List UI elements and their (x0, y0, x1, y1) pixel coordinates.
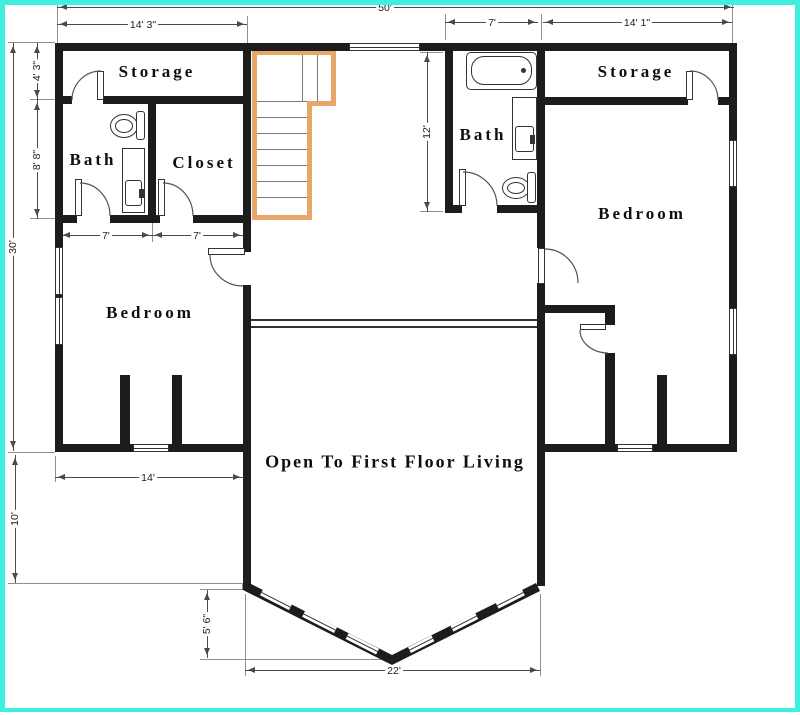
wall-right-exterior (729, 43, 737, 452)
room-label-closet-left: Closet (172, 153, 235, 173)
extension-line (200, 659, 392, 660)
dim-label-left-overall: 30' (7, 238, 19, 256)
stair-tread (257, 133, 307, 134)
stair-tread (257, 117, 307, 118)
room-label-storage-right: Storage (598, 62, 675, 82)
door-swing-arc (163, 183, 193, 216)
extension-line (245, 594, 246, 676)
wall-storageR-a (545, 97, 688, 105)
toilet-tank-icon (527, 172, 536, 203)
dim-label-bay-depth: 5' 6" (201, 612, 213, 636)
dim-line-overall-width (57, 7, 734, 8)
bay-window-mullion (497, 592, 523, 605)
wall-bathL-a (55, 215, 77, 223)
room-label-storage-left: Storage (119, 62, 196, 82)
window-top-hall (349, 43, 420, 51)
window-left-2 (55, 297, 63, 345)
wall-bedroomR-left-lower (537, 283, 545, 586)
loft-railing (251, 326, 537, 328)
wall-top-left (55, 43, 349, 51)
wall-stub-bedroomR (657, 375, 667, 445)
bay-window (452, 616, 477, 629)
door-leaf-storage-left (97, 71, 104, 100)
wall-stairwell-left-upper (243, 43, 251, 252)
dim-label-bay-width: 22' (385, 665, 403, 677)
extension-line (541, 14, 542, 40)
dim-label-left-storage-depth: 4' 3" (31, 59, 43, 83)
dim-label-bath-width: 7' (100, 230, 112, 242)
bay-window-mullion (347, 636, 378, 652)
door-swing-arc (690, 71, 718, 100)
stair-tread (257, 101, 307, 102)
wall-closetR-side (605, 353, 615, 445)
faucet-icon (139, 189, 144, 198)
bay-window (262, 592, 291, 607)
stair-run-floor (252, 50, 312, 220)
overlay-graphics (0, 0, 800, 715)
extension-line (247, 16, 248, 43)
bay-window-mullion (304, 614, 336, 630)
bay-wall (247, 584, 538, 660)
stair-tread (257, 181, 307, 182)
door-leaf-closet-right (580, 324, 606, 330)
room-label-bedroom-left: Bedroom (106, 303, 194, 323)
page-border-bottom (0, 708, 800, 712)
stair-tread (257, 197, 307, 198)
room-label-bath-left: Bath (70, 150, 117, 170)
door-leaf-bedroom-left (208, 248, 245, 255)
bay-window (347, 636, 378, 652)
dim-label-top-bath: 7' (486, 17, 498, 29)
dim-label-top-left-wing: 14' 3" (128, 19, 158, 31)
bay-window-mullion (452, 616, 477, 629)
toilet-bowl-icon (115, 119, 133, 133)
wall-bath-closet-divider (148, 104, 156, 215)
wall-bathR-left (445, 43, 453, 213)
extension-line (540, 594, 541, 676)
stair-tread (317, 55, 318, 101)
room-label-bedroom-right: Bedroom (598, 204, 686, 224)
wall-closetR-stub (605, 313, 615, 325)
window-left-1 (55, 247, 63, 295)
window-right-1 (729, 140, 737, 187)
door-leaf-bath-right (459, 169, 466, 206)
page-border-top (0, 0, 800, 5)
bay-window (304, 614, 336, 630)
wall-storageL-b (103, 96, 245, 104)
wall-central-left-lower (243, 285, 251, 586)
dim-label-top-right-wing: 14' 1" (622, 17, 652, 29)
door-swing-arc (545, 249, 578, 283)
wall-bathL-c (193, 215, 247, 223)
extension-line (8, 452, 55, 453)
wall-bathL-b (110, 215, 160, 223)
toilet-tank-icon (136, 111, 145, 140)
page-border-left (0, 0, 5, 712)
door-leaf-bedroom-right (538, 248, 545, 284)
door-swing-arc (463, 172, 497, 206)
door-swing-arc (210, 255, 243, 286)
page-border-right (795, 0, 800, 712)
dim-label-left-lower: 10' (9, 510, 21, 528)
bay-window (497, 592, 523, 605)
door-leaf-closet-left (158, 179, 165, 216)
room-label-bath-right: Bath (460, 125, 507, 145)
stair-edge-bottom (252, 215, 312, 220)
toilet-bowl-icon (507, 182, 525, 194)
bay-window (410, 638, 433, 650)
dim-label-bedroom-width: 14' (139, 472, 157, 484)
stair-tread (257, 149, 307, 150)
door-leaf-storage-right (686, 71, 693, 100)
floor-plan: 50' 14' 3" 7' 14' 1" 30' 4' 3" 8' 8" 10'… (0, 0, 800, 715)
drain-icon (521, 68, 526, 73)
dim-label-closet-width: 7' (191, 230, 203, 242)
window-right-2 (729, 308, 737, 355)
door-swing-arc (80, 183, 110, 216)
door-swing-arc (580, 330, 608, 353)
stair-tread (302, 55, 303, 101)
wall-bedroomR-left-upper (537, 43, 545, 248)
bay-window-mullion (262, 592, 291, 607)
stair-edge-left (252, 50, 257, 220)
window-bedroomR-bottom (617, 444, 653, 452)
loft-railing (251, 319, 537, 321)
stair-edge-right-upper (331, 50, 336, 106)
wall-top-right (420, 43, 737, 51)
stair-tread (257, 165, 307, 166)
door-leaf-bath-left (75, 179, 82, 216)
wall-bathR-floor-a (445, 205, 462, 213)
extension-line (8, 583, 245, 584)
wall-closetR-top (543, 305, 615, 313)
room-label-open-living: Open To First Floor Living (265, 452, 525, 473)
wall-bathR-floor-b (497, 205, 545, 213)
faucet-icon (530, 135, 535, 144)
bay-window-mullion (410, 638, 433, 650)
wall-stub-bedroomL-1 (120, 375, 130, 445)
wall-storageL-a (63, 96, 72, 104)
dim-label-right-bath-depth: 12' (421, 123, 433, 141)
wall-storageR-b (718, 97, 729, 105)
wall-stub-bedroomL-2 (172, 375, 182, 445)
window-bedroomL-bottom (133, 444, 169, 452)
dim-label-left-bath-depth: 8' 8" (31, 148, 43, 172)
extension-line (445, 14, 446, 40)
stair-edge-right-lower (307, 101, 312, 220)
